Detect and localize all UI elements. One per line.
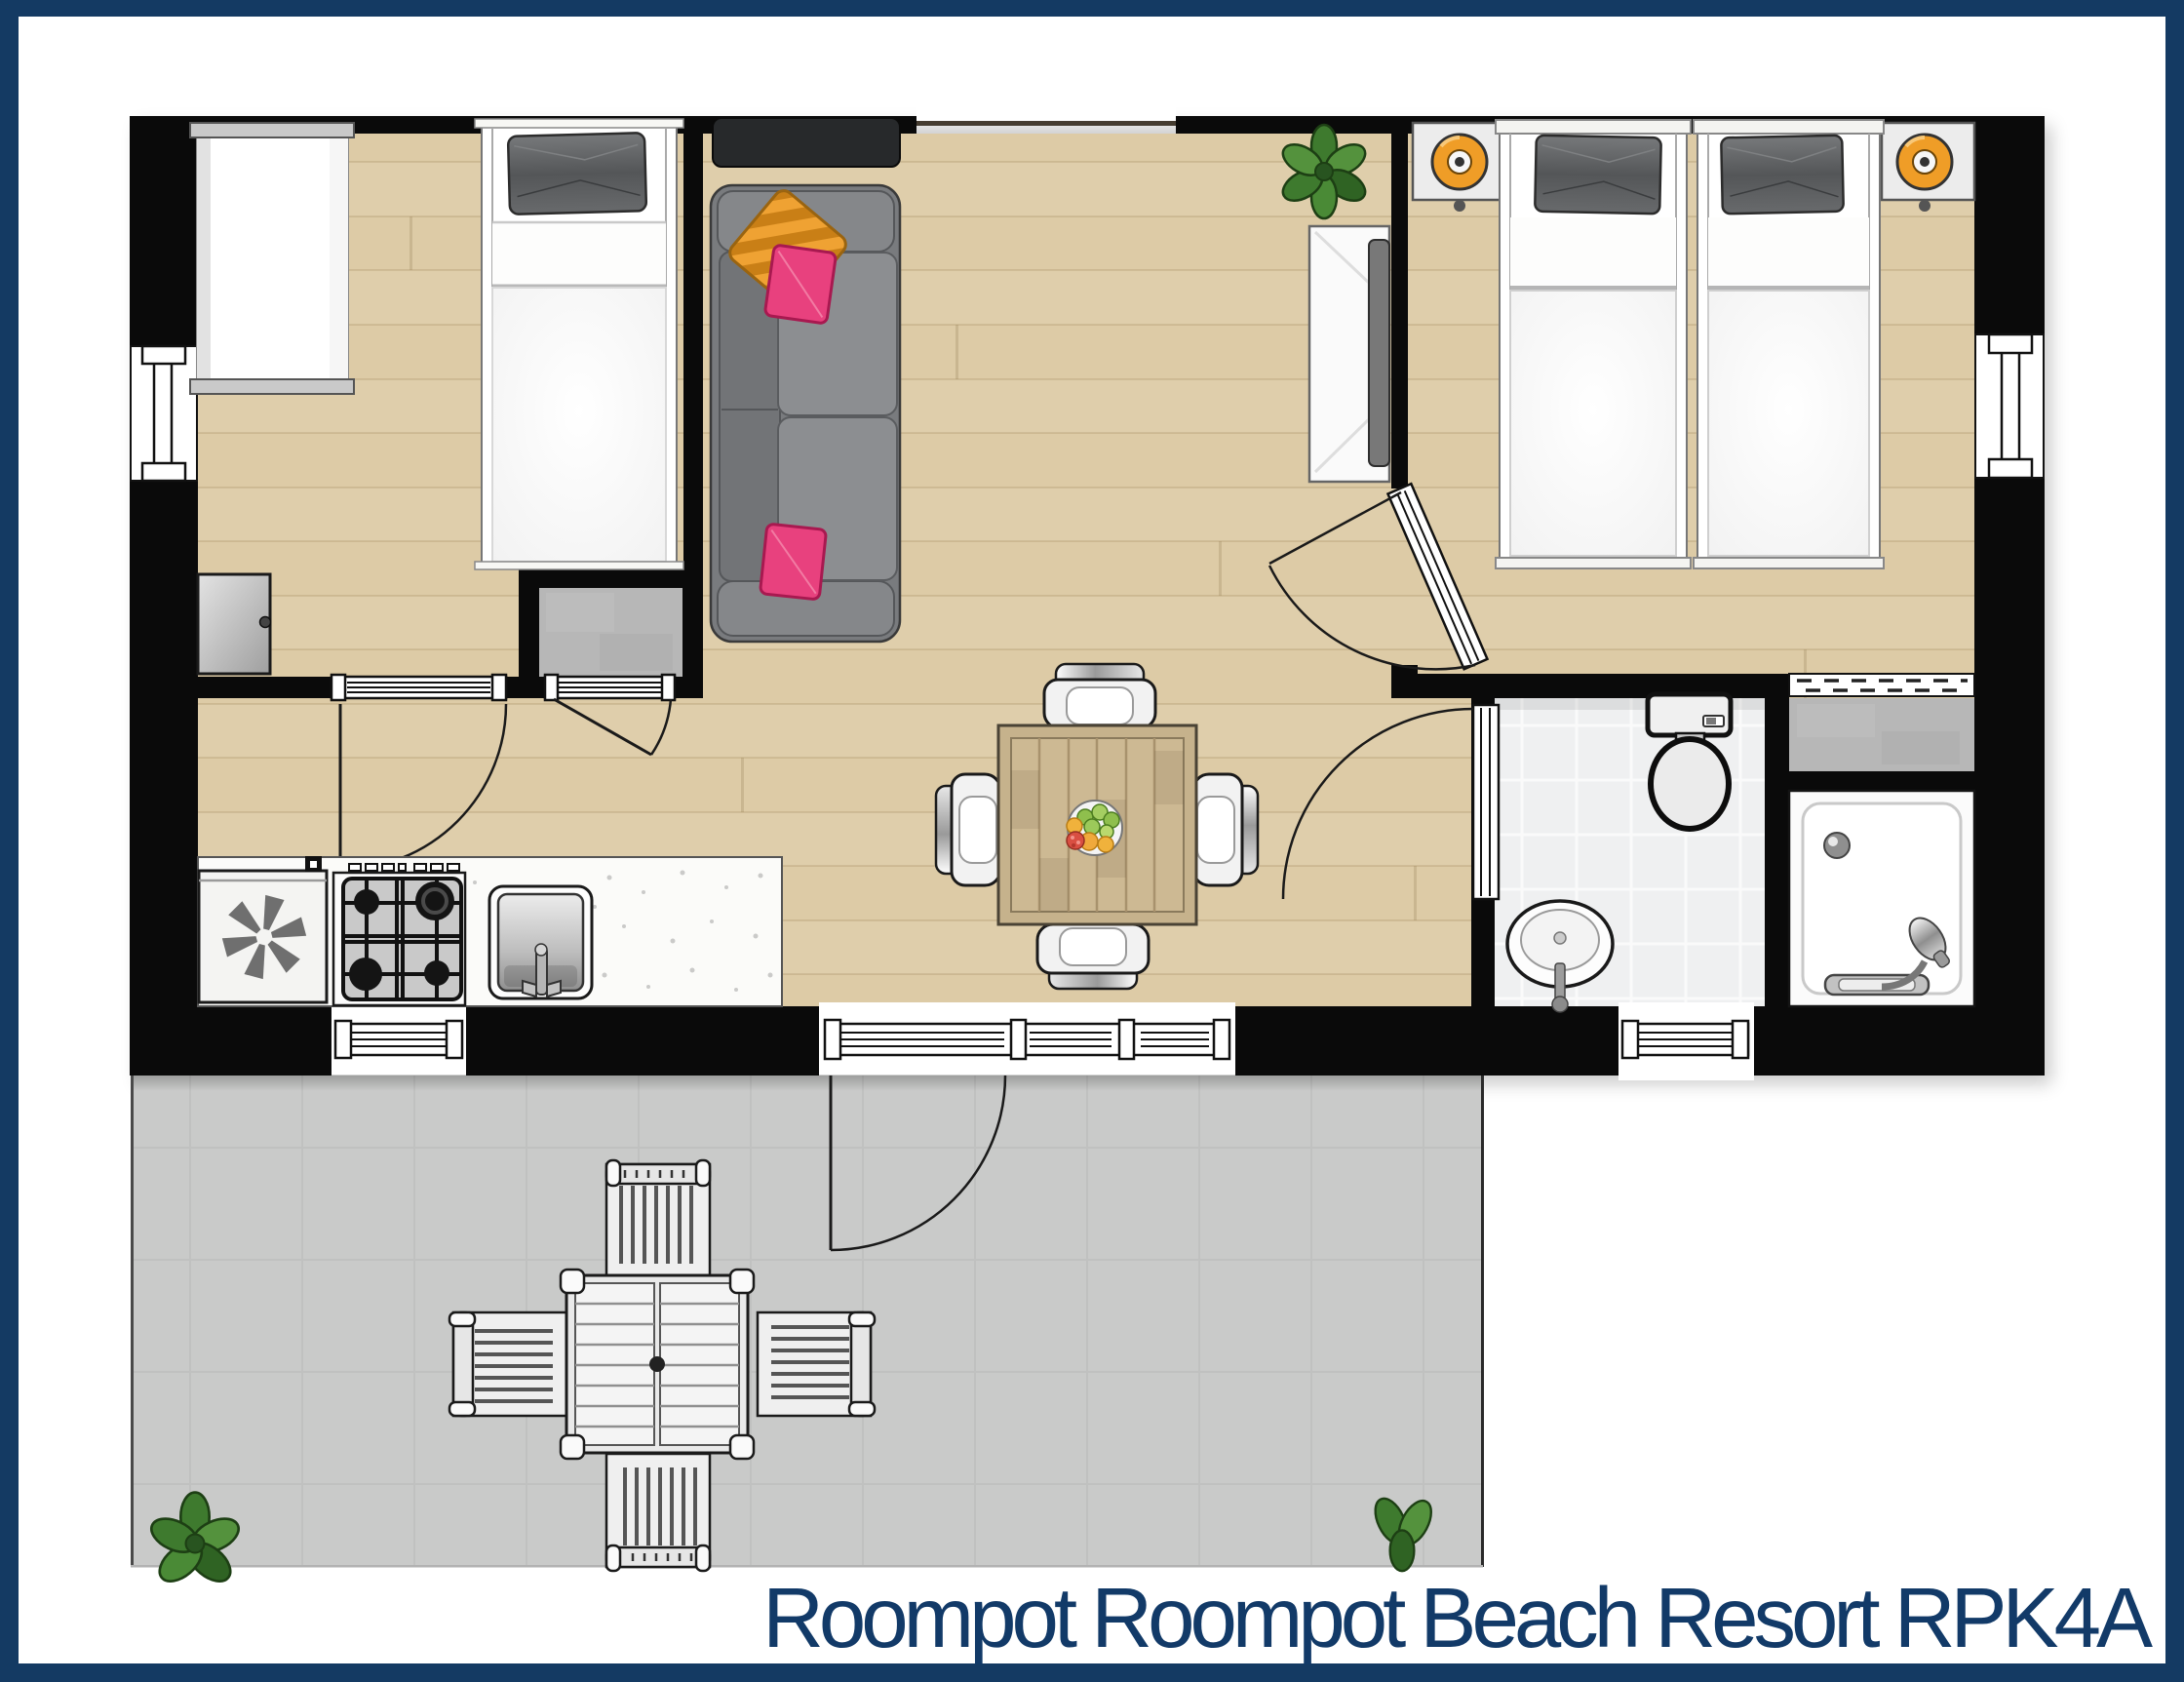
svg-text:Roompot Roompot Beach Resort R: Roompot Roompot Beach Resort RPK4A: [762, 1571, 2153, 1665]
